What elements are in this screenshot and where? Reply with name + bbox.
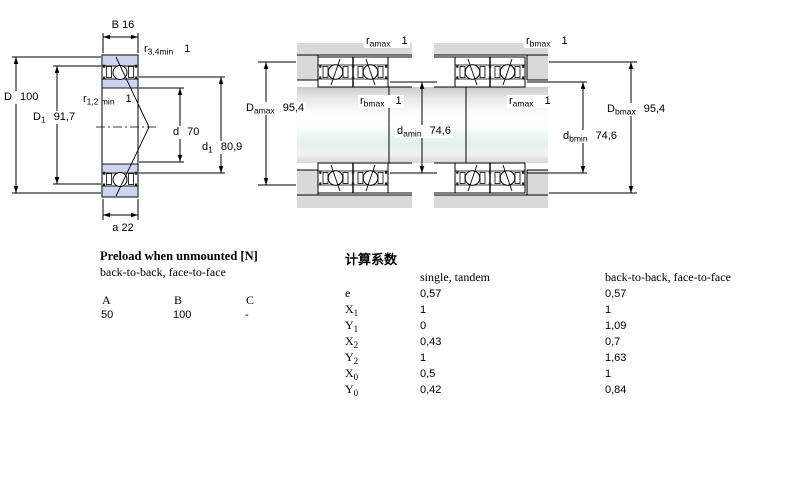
factors-col1-value: 0,57 <box>420 288 441 300</box>
preload-header-c: C <box>246 293 254 308</box>
dim-label-d: d70 <box>171 126 201 139</box>
factors-col1-value: 0,42 <box>420 384 441 396</box>
factors-row-label: Y0 <box>345 382 358 397</box>
bearing-datasheet-page: B 16 r3,4min1 D100 D191,7 r1,2 min1 d70 … <box>0 0 800 500</box>
dim-label-rbmax-mid: rbmax1 <box>358 95 404 108</box>
dim-label-dbmin: dbmin74,6 <box>561 130 619 143</box>
factors-col2-value: 1 <box>605 304 611 316</box>
dim-label-a: a 22 <box>100 222 146 235</box>
factors-col1-value: 0,5 <box>420 368 435 380</box>
factors-col1-value: 0 <box>420 320 426 332</box>
factors-col2-value: 0,57 <box>605 288 626 300</box>
factors-col1-header: single, tandem <box>420 270 490 285</box>
preload-title: Preload when unmounted [N] <box>100 249 258 264</box>
factors-row-label: X1 <box>345 302 358 317</box>
preload-header-a: A <box>102 293 111 308</box>
factors-row-label: e <box>345 286 350 301</box>
factors-col2-value: 1,63 <box>605 352 626 364</box>
factors-row-label: Y2 <box>345 350 358 365</box>
factors-col1-value: 0,43 <box>420 336 441 348</box>
dim-label-Dbmax: Dbmax95,4 <box>605 103 667 116</box>
factors-col2-value: 0,84 <box>605 384 626 396</box>
factors-col2-value: 1,09 <box>605 320 626 332</box>
factors-col2-value: 0,7 <box>605 336 620 348</box>
preload-value-b: 100 <box>173 309 191 321</box>
dim-label-D1: D191,7 <box>31 111 77 124</box>
dim-label-ramax-mid: ramax1 <box>507 95 553 108</box>
factors-col1-value: 1 <box>420 304 426 316</box>
dim-label-r12min: r1,2 min1 <box>81 93 134 106</box>
dim-label-B: B 16 <box>100 19 146 32</box>
preload-subtitle: back-to-back, face-to-face <box>100 265 226 280</box>
dim-label-damin: damin74,6 <box>395 125 453 138</box>
dim-label-D: D100 <box>2 91 40 104</box>
single-bearing-section <box>96 55 158 197</box>
preload-value-c: - <box>245 309 249 321</box>
factors-row-label: X0 <box>345 366 358 381</box>
factors-row-label: Y1 <box>345 318 358 333</box>
factors-row-label: X2 <box>345 334 358 349</box>
preload-value-a: 50 <box>101 309 113 321</box>
factors-col1-value: 1 <box>420 352 426 364</box>
factors-col2-value: 1 <box>605 368 611 380</box>
dim-label-ramax-top: ramax1 <box>364 35 410 48</box>
dim-label-rbmax-top: rbmax1 <box>524 35 570 48</box>
factors-title: 计算系数 <box>345 249 397 268</box>
dim-label-Damax: Damax95,4 <box>244 102 306 115</box>
preload-header-b: B <box>174 293 182 308</box>
factors-col2-header: back-to-back, face-to-face <box>605 270 731 285</box>
dim-label-r34min: r3,4min1 <box>142 43 192 56</box>
dim-label-d1: d180,9 <box>200 141 244 154</box>
